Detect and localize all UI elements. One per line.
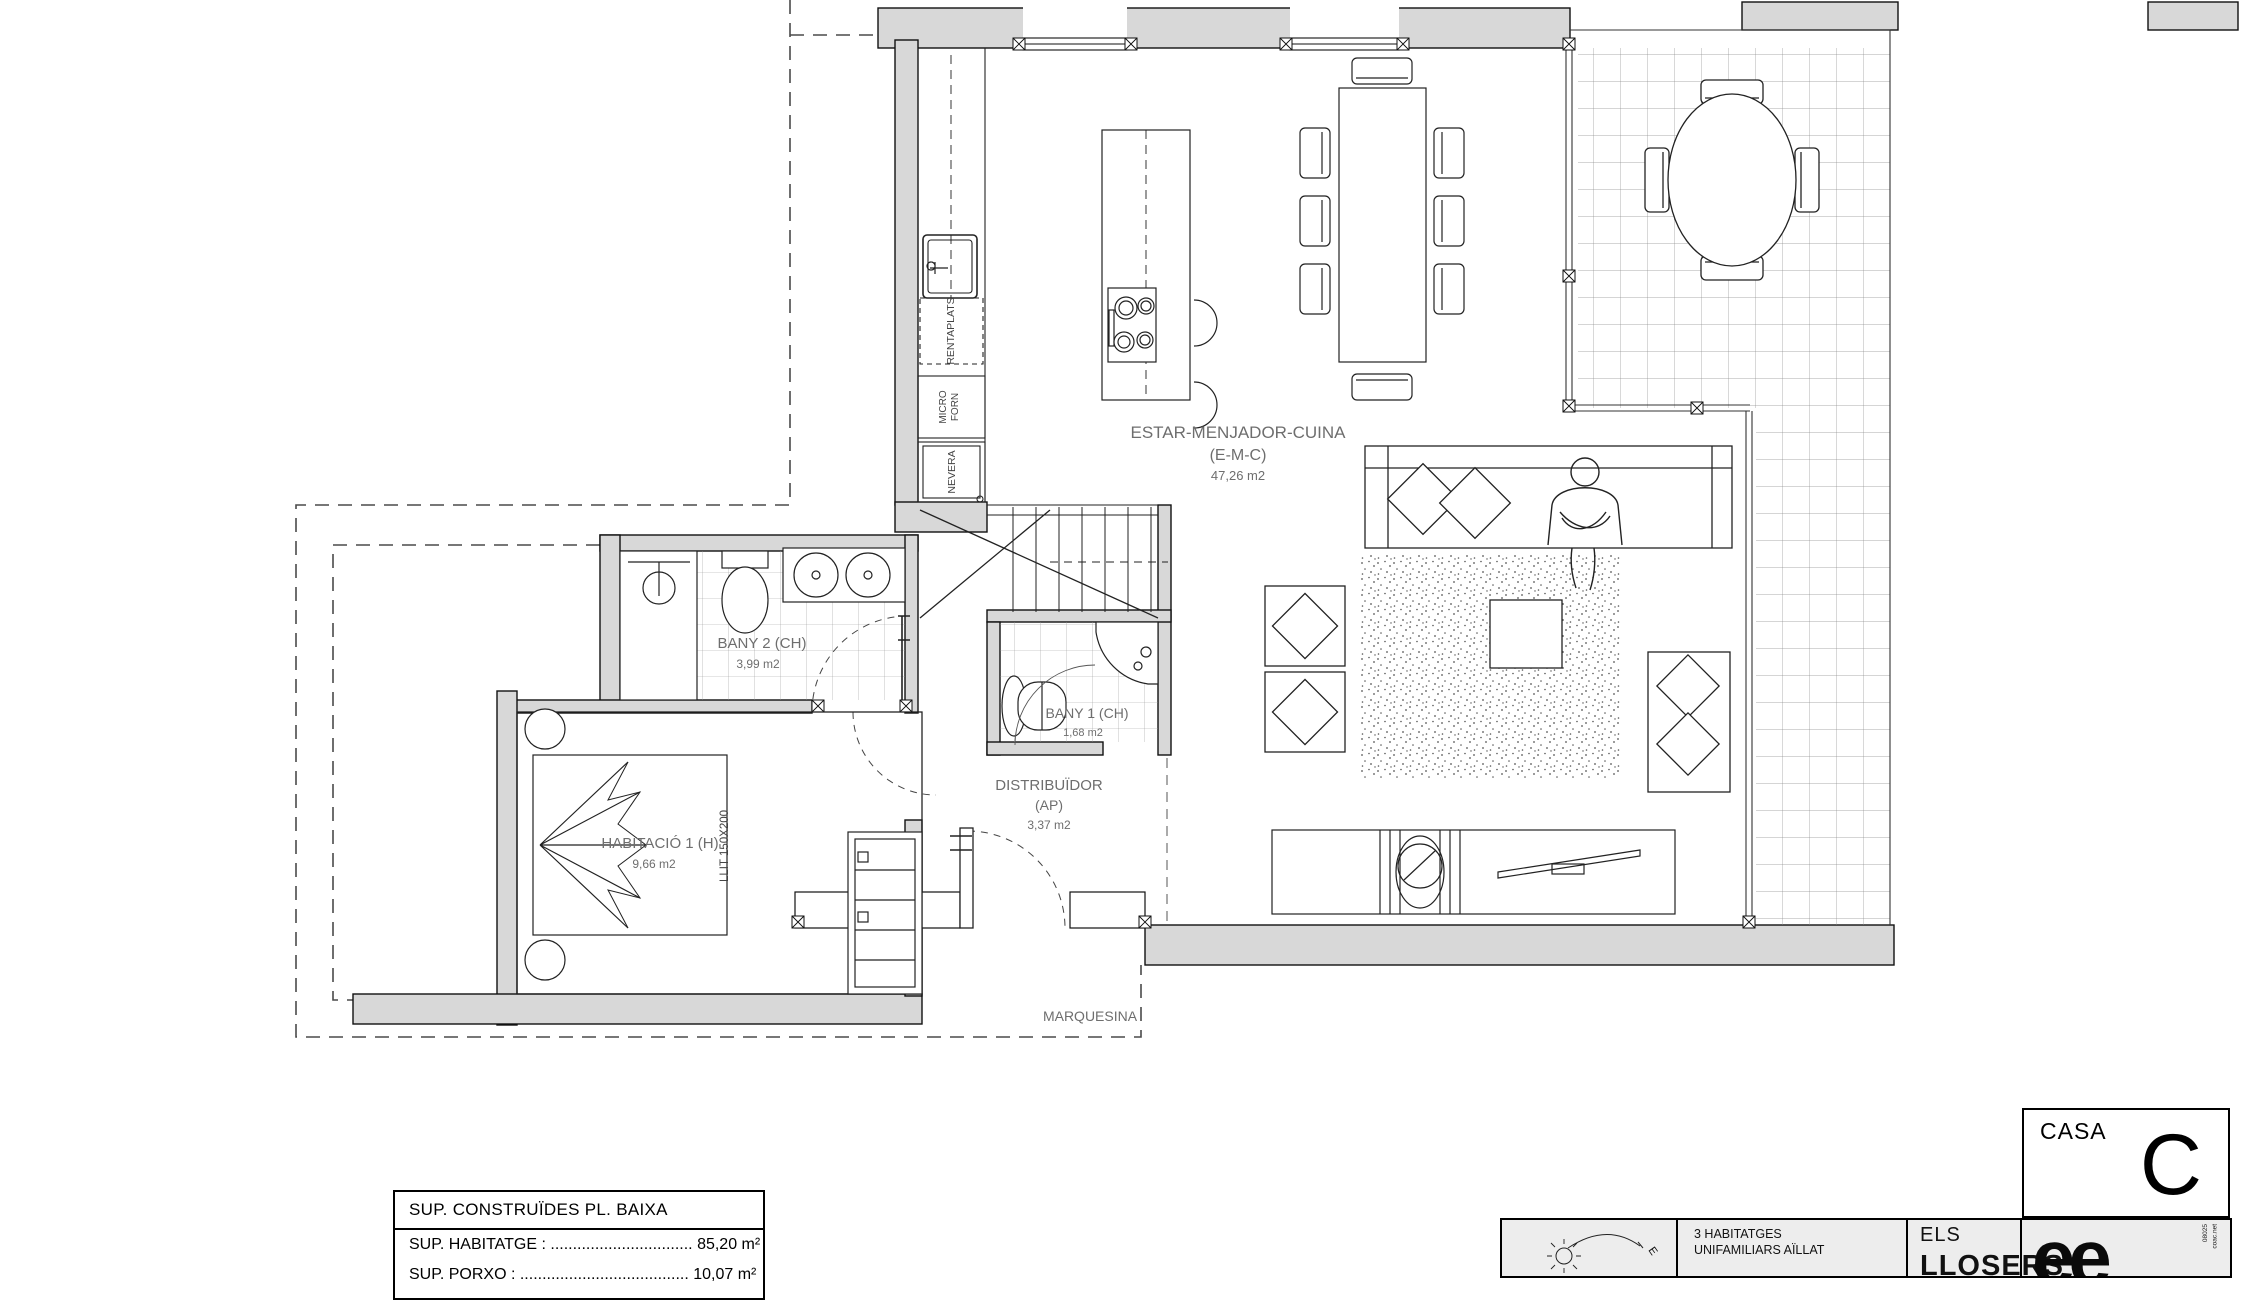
casa-label: CASA: [2040, 1118, 2107, 1145]
label-rentaplats: RENTAPLATS: [945, 297, 957, 364]
label-dist-2: (AP): [1035, 797, 1063, 813]
floor-plan-sheet: { "rooms": { "emc": {"l1": "ESTAR-MENJAD…: [0, 0, 2241, 1260]
cooktop-icon: [1108, 288, 1156, 362]
title-block: E 3 HABITATGES UNIFAMILIARS AÏLLAT ELS L…: [1500, 1218, 2232, 1278]
logo-side-text-2: coac.net: [2212, 1224, 2219, 1249]
double-sink-icon: [783, 548, 905, 602]
wardrobe-icon: [848, 832, 922, 994]
stool-icon: [1194, 300, 1217, 346]
label-bany2-2: 3,99 m2: [736, 657, 780, 671]
tv-bench: [1272, 830, 1675, 914]
stool-icon: [1194, 382, 1217, 428]
chaise: [1648, 652, 1730, 792]
project-name-els: ELS: [1920, 1224, 2020, 1247]
areas-table-row-porxo: SUP. PORXO : ...........................…: [395, 1260, 763, 1290]
areas-table-row-habitatge: SUP. HABITATGE : .......................…: [395, 1230, 763, 1260]
areas-table: SUP. CONSTRUÏDES PL. BAIXA SUP. HABITATG…: [393, 1190, 765, 1300]
label-hab-2: 9,66 m2: [632, 857, 676, 871]
areas-table-title: SUP. CONSTRUÏDES PL. BAIXA: [395, 1192, 763, 1230]
project-line-1: 3 HABITATGES: [1694, 1226, 1906, 1242]
bany2: [620, 548, 910, 712]
project-name: ELS LLOSERS: [1908, 1220, 2022, 1276]
floor-plan-drawing: ESTAR-MENJADOR-CUINA (E-M-C) 47,26 m2 BA…: [0, 0, 2241, 1260]
project-description: 3 HABITATGES UNIFAMILIARS AÏLLAT: [1678, 1220, 1908, 1276]
label-hab-1: HABITACIÓ 1 (H): [601, 835, 718, 852]
logo-side-text-1: 08025: [2202, 1224, 2209, 1242]
casa-box: CASA C: [2022, 1108, 2230, 1218]
door-swing-bedroom: [853, 712, 936, 795]
label-bany2-1: BANY 2 (CH): [718, 635, 807, 652]
label-emc-1: ESTAR-MENJADOR-CUINA: [1130, 423, 1346, 442]
rug: [1361, 554, 1620, 778]
entrance-door-leaf: [960, 828, 973, 928]
kitchen-counter: [918, 48, 985, 502]
label-bany1-2: 1,68 m2: [1063, 727, 1103, 739]
kitchen-sink-icon: [923, 235, 977, 298]
label-marquesina: MARQUESINA: [1043, 1008, 1138, 1024]
studio-logo-cell: ee 08025 coac.net: [2022, 1220, 2230, 1276]
project-name-llosers: LLOSERS: [1920, 1250, 2020, 1278]
door-swing-entrance: [968, 831, 1065, 928]
shower-icon: [620, 551, 697, 700]
label-llit: LLIT 150X200: [719, 810, 731, 882]
project-line-2: UNIFAMILIARS AÏLLAT: [1694, 1242, 1906, 1258]
casa-letter: C: [2140, 1116, 2202, 1215]
kitchen-island: [1102, 130, 1217, 428]
studio-logo: ee: [2032, 1218, 2105, 1278]
coffee-table: [1490, 600, 1562, 668]
label-bany1-1: BANY 1 (CH): [1046, 705, 1129, 721]
label-micro: MICRO: [938, 390, 949, 424]
label-nevera: NEVERA: [946, 450, 958, 493]
sun-path-diagram: E: [1502, 1220, 1678, 1276]
label-emc-3: 47,26 m2: [1211, 468, 1265, 483]
label-dist-1: DISTRIBUÏDOR: [995, 777, 1103, 794]
label-emc-2: (E-M-C): [1210, 447, 1267, 464]
label-forn: FORN: [950, 393, 961, 421]
dining-table: [1300, 58, 1464, 400]
toilet-icon: [722, 551, 768, 633]
armchairs: [1265, 586, 1345, 752]
label-dist-3: 3,37 m2: [1027, 818, 1071, 832]
sun-path-east-label: E: [1646, 1245, 1660, 1258]
